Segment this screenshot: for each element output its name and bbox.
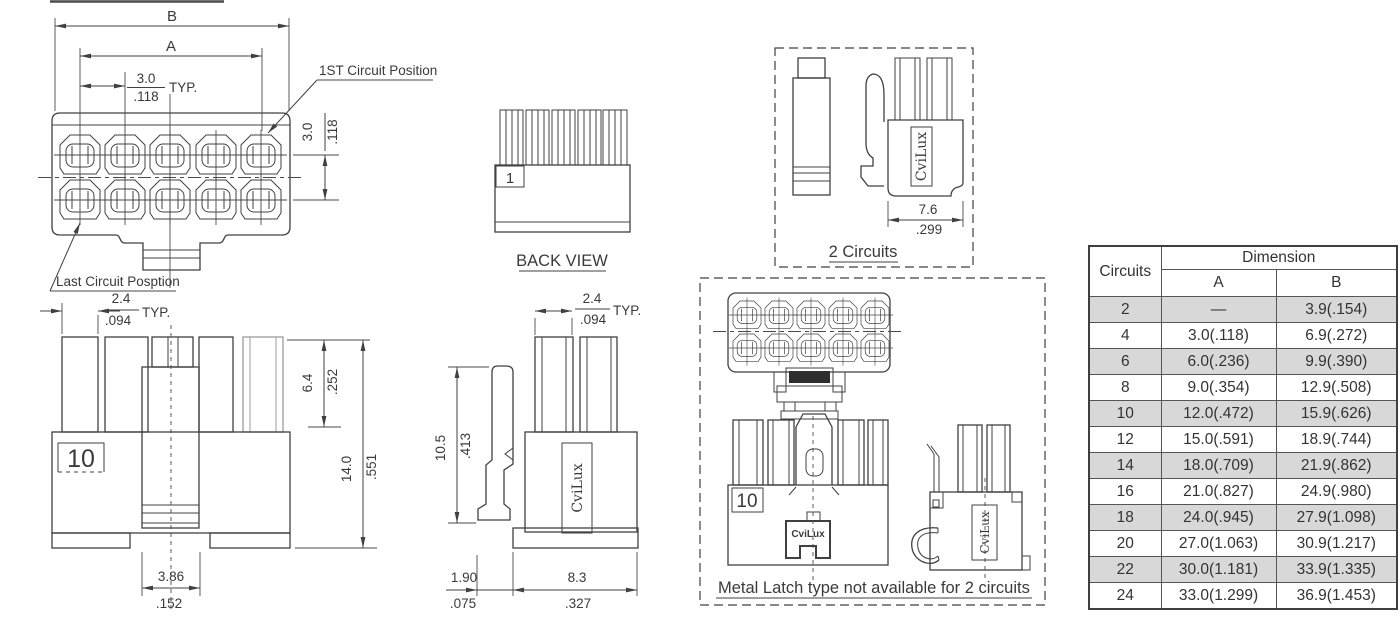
table-cell-circuits: 18 [1089, 505, 1161, 531]
metal-latch-position-label: 10 [736, 491, 757, 512]
table-header-dimension: Dimension [1161, 246, 1397, 270]
table-cell-a: 6.0(.236) [1161, 349, 1276, 375]
table-cell-b: 36.9(1.453) [1276, 583, 1397, 610]
side-center-pitch-in: .094 [580, 312, 607, 327]
table-row: 1418.0(.709)21.9(.862) [1089, 453, 1397, 479]
table-row: 1215.0(.591)18.9(.744) [1089, 427, 1397, 453]
table-cell-circuits: 6 [1089, 349, 1161, 375]
side-center-pitch-mm: 2.4 [583, 291, 602, 306]
side-center-latch-height-in: .413 [458, 433, 473, 459]
two-circuits-width-mm: 7.6 [919, 202, 938, 217]
table-cell-a: 9.0(.354) [1161, 375, 1276, 401]
back-view-drawing: 1 BACK VIEW [495, 110, 630, 271]
side-left-latch-width-in: .152 [156, 596, 182, 611]
front-view-drawing: B A 3.0 .118 TYP. 3.0 .118 1ST Circuit P… [38, 8, 437, 291]
side-view-center-drawing: CviLux 2.4 .094 TYP. 10.5 .413 1.90 .075… [433, 291, 641, 611]
table-cell-b: 12.9(.508) [1276, 375, 1397, 401]
metal-latch-side-logo: CviLux [978, 511, 992, 553]
table-cell-a: 18.0(.709) [1161, 453, 1276, 479]
table-cell-circuits: 14 [1089, 453, 1161, 479]
table-row: 2433.0(1.299)36.9(1.453) [1089, 583, 1397, 610]
table-cell-b: 9.9(.390) [1276, 349, 1397, 375]
table-cell-b: 18.9(.744) [1276, 427, 1397, 453]
table-cell-circuits: 2 [1089, 297, 1161, 323]
side-left-total-height-in: .551 [364, 454, 379, 480]
table-cell-b: 30.9(1.217) [1276, 531, 1397, 557]
dim-row-pitch-in: .118 [325, 119, 340, 144]
side-center-logo: CviLux [570, 463, 586, 512]
table-cell-a: 21.0(.827) [1161, 479, 1276, 505]
table-cell-circuits: 12 [1089, 427, 1161, 453]
table-row: 66.0(.236)9.9(.390) [1089, 349, 1397, 375]
metal-latch-caption: Metal Latch type not available for 2 cir… [718, 579, 1030, 597]
side-left-latch-width-mm: 3.86 [158, 569, 184, 584]
table-cell-circuits: 8 [1089, 375, 1161, 401]
table-cell-a: — [1161, 297, 1276, 323]
dim-pitch-in: .118 [133, 89, 158, 104]
side-left-pin-height-mm: 6.4 [300, 373, 315, 392]
side-left-pin-height-in: .252 [325, 369, 340, 395]
side-left-total-height-mm: 14.0 [339, 456, 354, 482]
table-cell-a: 27.0(1.063) [1161, 531, 1276, 557]
dim-pitch-typ: TYP. [169, 80, 197, 95]
table-cell-b: 33.9(1.335) [1276, 557, 1397, 583]
metal-latch-view-drawing: 10 CviLux CviLux Metal Latch type not av… [700, 278, 1045, 605]
back-view-caption: BACK VIEW [516, 252, 608, 270]
table-cell-circuits: 20 [1089, 531, 1161, 557]
two-circuits-view-drawing: CviLux 7.6 .299 2 Circuits [775, 48, 973, 267]
metal-latch-front-logo: CviLux [791, 529, 825, 540]
table-header-circuits: Circuits [1089, 246, 1161, 297]
table-cell-a: 15.0(.591) [1161, 427, 1276, 453]
table-row: 43.0(.118)6.9(.272) [1089, 323, 1397, 349]
table-header-a: A [1161, 270, 1276, 297]
side-center-offset-in: .075 [450, 596, 476, 611]
table-cell-b: 15.9(.626) [1276, 401, 1397, 427]
table-row: 2027.0(1.063)30.9(1.217) [1089, 531, 1397, 557]
dim-label-a: A [166, 38, 176, 55]
side-view-left-drawing: 10 2.4 .094 TYP. 6.4 .252 14.0 .551 3.86… [40, 291, 379, 612]
table-cell-a: 33.0(1.299) [1161, 583, 1276, 610]
side-center-pitch-typ: TYP. [613, 303, 641, 318]
dimension-table-body: 2—3.9(.154)43.0(.118)6.9(.272)66.0(.236)… [1089, 297, 1397, 610]
side-left-pitch-typ: TYP. [142, 305, 170, 320]
table-row: 89.0(.354)12.9(.508) [1089, 375, 1397, 401]
side-center-offset-mm: 1.90 [451, 570, 477, 585]
table-cell-b: 27.9(1.098) [1276, 505, 1397, 531]
dim-row-pitch-mm: 3.0 [300, 123, 315, 142]
table-cell-b: 6.9(.272) [1276, 323, 1397, 349]
side-center-latch-height-mm: 10.5 [433, 435, 448, 461]
side-left-pitch-mm: 2.4 [112, 291, 131, 306]
table-cell-a: 12.0(.472) [1161, 401, 1276, 427]
callout-first-circuit: 1ST Circuit Position [319, 63, 437, 78]
technical-drawing-sheet: B A 3.0 .118 TYP. 3.0 .118 1ST Circuit P… [0, 0, 1400, 624]
table-cell-b: 24.9(.980) [1276, 479, 1397, 505]
table-cell-b: 21.9(.862) [1276, 453, 1397, 479]
dimension-table: Circuits Dimension A B 2—3.9(.154)43.0(.… [1088, 245, 1398, 610]
table-row: 2—3.9(.154) [1089, 297, 1397, 323]
dim-label-b: B [167, 8, 177, 25]
side-center-body-width-mm: 8.3 [568, 570, 587, 585]
side-left-pitch-in: .094 [105, 313, 132, 328]
table-cell-circuits: 16 [1089, 479, 1161, 505]
table-cell-circuits: 24 [1089, 583, 1161, 610]
table-cell-a: 3.0(.118) [1161, 323, 1276, 349]
dim-pitch-mm: 3.0 [137, 71, 156, 86]
table-cell-circuits: 22 [1089, 557, 1161, 583]
callout-last-circuit: Last Circuit Posption [56, 274, 180, 289]
table-cell-a: 24.0(.945) [1161, 505, 1276, 531]
table-row: 2230.0(1.181)33.9(1.335) [1089, 557, 1397, 583]
side-left-position-label: 10 [67, 445, 95, 473]
table-cell-circuits: 10 [1089, 401, 1161, 427]
two-circuits-caption: 2 Circuits [829, 243, 898, 261]
table-cell-b: 3.9(.154) [1276, 297, 1397, 323]
table-row: 1012.0(.472)15.9(.626) [1089, 401, 1397, 427]
table-cell-circuits: 4 [1089, 323, 1161, 349]
back-view-fins [500, 110, 627, 165]
metal-latch-top-latch [774, 368, 845, 419]
table-cell-a: 30.0(1.181) [1161, 557, 1276, 583]
back-view-position-1-label: 1 [506, 170, 514, 187]
table-row: 1621.0(.827)24.9(.980) [1089, 479, 1397, 505]
two-circuits-logo: CviLux [914, 132, 930, 181]
table-row: 1824.0(.945)27.9(1.098) [1089, 505, 1397, 531]
side-center-body-width-in: .327 [565, 596, 591, 611]
table-header-b: B [1276, 270, 1397, 297]
two-circuits-width-in: .299 [916, 222, 942, 237]
